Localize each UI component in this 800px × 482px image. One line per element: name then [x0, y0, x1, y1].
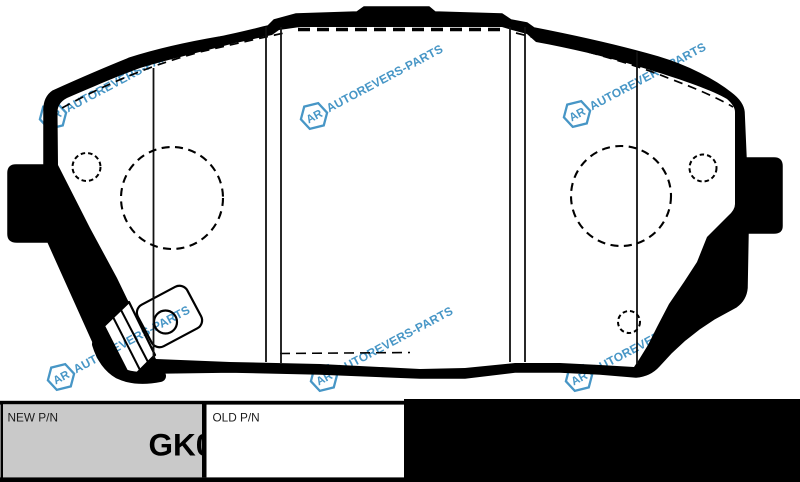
- svg-text:OLD P/N: OLD P/N: [213, 411, 260, 425]
- svg-text:NEW P/N: NEW P/N: [8, 411, 58, 425]
